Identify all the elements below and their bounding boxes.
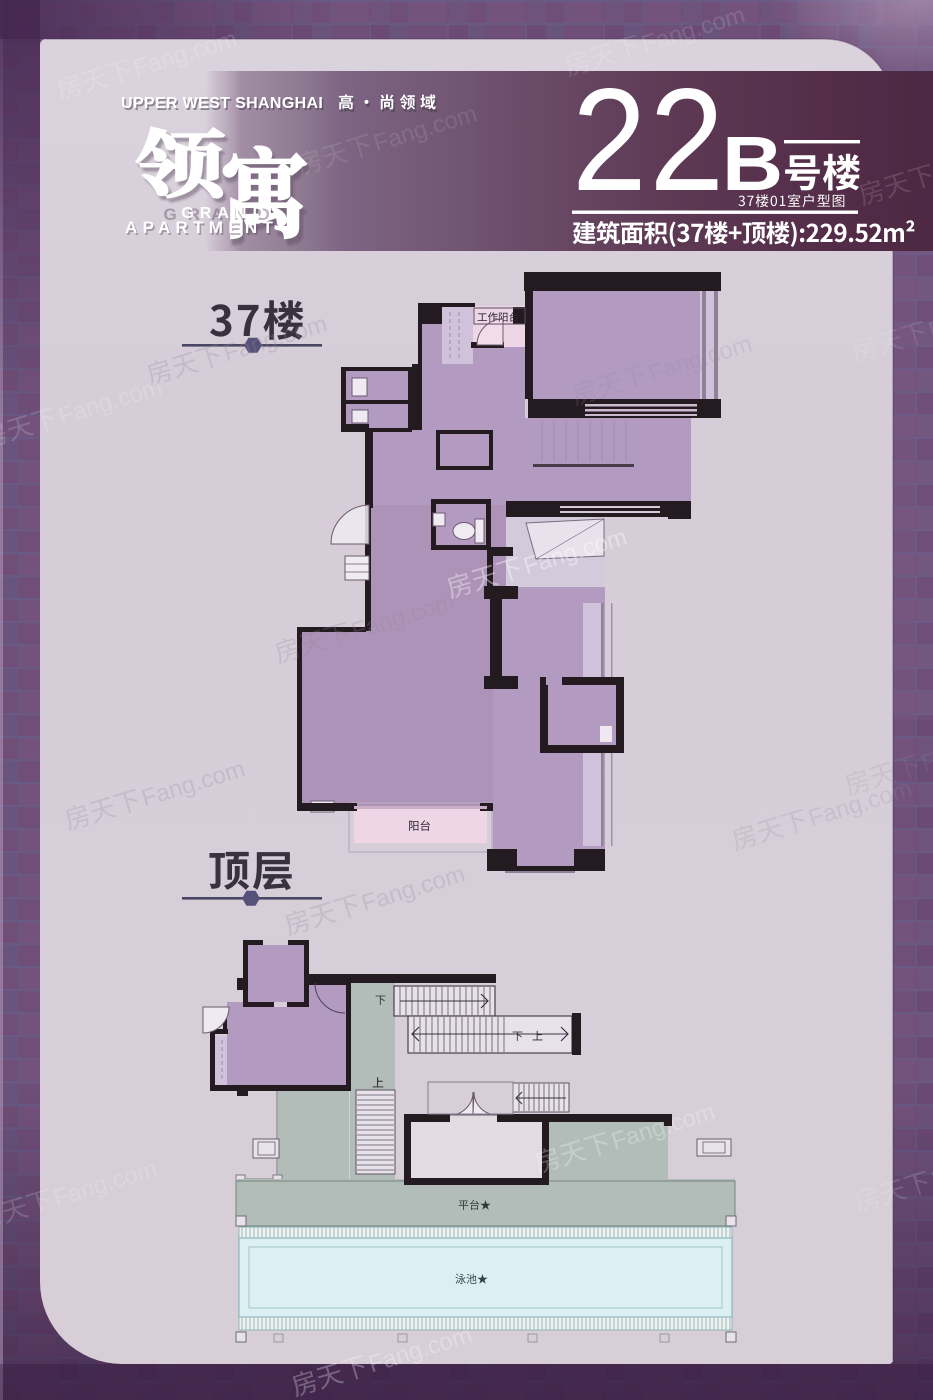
svg-text:APARTMENT: APARTMENT [125,218,278,237]
svg-text:Fang.com: Fang.com [80,0,187,6]
svg-text:B: B [722,122,783,208]
svg-text:22: 22 [572,58,727,221]
svg-text:UPPER WEST SHANGHAI: UPPER WEST SHANGHAI [121,95,323,112]
